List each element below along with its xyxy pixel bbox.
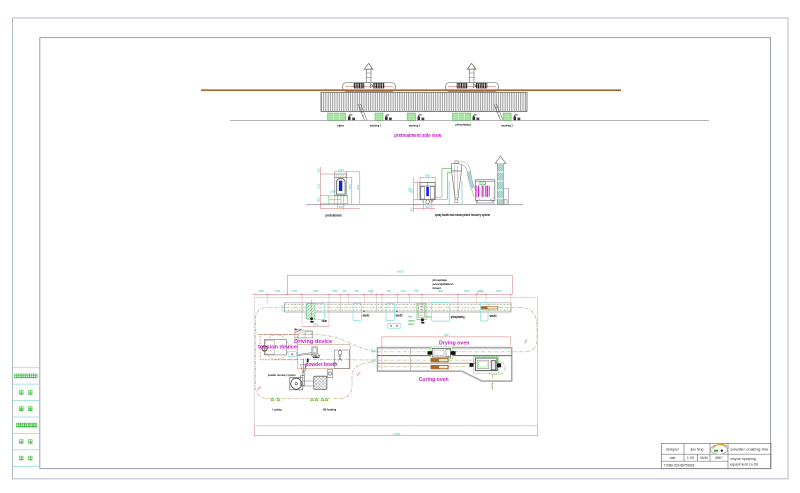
svg-text:600: 600 xyxy=(410,207,414,212)
svg-text:1500: 1500 xyxy=(464,289,470,293)
svg-text:xinyue spraying: xinyue spraying xyxy=(730,457,756,461)
svg-text:Off loading: Off loading xyxy=(323,407,337,411)
svg-text:1500: 1500 xyxy=(330,189,336,193)
svg-text:2200: 2200 xyxy=(496,289,502,293)
svg-text:2000: 2000 xyxy=(490,383,494,389)
svg-text:phosphating: phosphating xyxy=(455,123,470,127)
svg-text:2225: 2225 xyxy=(275,289,281,293)
svg-text:1500: 1500 xyxy=(372,348,375,354)
svg-text:Driving device: Driving device xyxy=(294,339,332,345)
svg-text:1450: 1450 xyxy=(332,289,338,293)
svg-text:skim: skim xyxy=(337,124,344,128)
svg-text:wash2: wash2 xyxy=(395,314,403,318)
svg-text:7300: 7300 xyxy=(443,333,449,337)
svg-text:3000: 3000 xyxy=(313,289,319,293)
svg-text:24250: 24250 xyxy=(396,269,404,273)
svg-text:jiao feng: jiao feng xyxy=(690,447,704,451)
svg-text:1700: 1700 xyxy=(400,289,406,293)
svg-text:hot: hot xyxy=(408,315,412,319)
svg-text:Curing oven: Curing oven xyxy=(419,377,449,383)
svg-text:1:100: 1:100 xyxy=(687,456,694,460)
svg-text:1500: 1500 xyxy=(410,188,414,194)
svg-text:1445: 1445 xyxy=(367,289,373,293)
svg-text:tank: tank xyxy=(408,322,414,326)
svg-text:skim: skim xyxy=(322,319,328,323)
svg-text:885617: 885617 xyxy=(715,456,722,460)
svg-text:pretreatment side view: pretreatment side view xyxy=(394,133,441,139)
svg-text:1700: 1700 xyxy=(292,289,298,293)
svg-text:1711: 1711 xyxy=(478,289,484,293)
svg-text:3000: 3000 xyxy=(313,323,319,327)
svg-text:powder booth: powder booth xyxy=(306,362,338,368)
svg-text:water: water xyxy=(408,318,415,322)
svg-text:1750: 1750 xyxy=(413,289,419,293)
svg-text:2250: 2250 xyxy=(316,183,320,189)
svg-text:27300: 27300 xyxy=(393,432,401,436)
svg-text:phosphating: phosphating xyxy=(451,315,465,319)
svg-text:pretreatment: pretreatment xyxy=(326,213,343,217)
svg-text:3000: 3000 xyxy=(425,174,431,178)
svg-text:washing 3: washing 3 xyxy=(501,124,513,128)
svg-text:1500: 1500 xyxy=(258,289,264,293)
svg-text:400: 400 xyxy=(426,205,431,209)
svg-text:powder recovery system: powder recovery system xyxy=(268,373,296,377)
svg-text:equipment co.ltd: equipment co.ltd xyxy=(730,463,758,467)
svg-text:tension device: tension device xyxy=(258,344,297,350)
svg-text:wash3: wash3 xyxy=(489,314,497,318)
svg-text:4500: 4500 xyxy=(437,289,443,293)
svg-text:washing 1: washing 1 xyxy=(369,124,381,128)
svg-text:1500: 1500 xyxy=(372,358,375,364)
svg-text:1000: 1000 xyxy=(338,168,344,172)
svg-text:T:0086-523-88759666: T:0086-523-88759666 xyxy=(664,463,695,467)
svg-text:Drying oven: Drying oven xyxy=(439,340,470,346)
svg-text:Loading: Loading xyxy=(272,407,281,411)
svg-text:powder coating line: powder coating line xyxy=(731,447,769,451)
svg-text:washing 2: washing 2 xyxy=(408,124,420,128)
svg-text:06/M: 06/M xyxy=(700,456,708,460)
svg-text:1500: 1500 xyxy=(348,184,352,190)
svg-text:designer: designer xyxy=(666,447,680,451)
svg-text:spray booth and monocyclone re: spray booth and monocyclone recovery sys… xyxy=(435,213,490,217)
svg-text:rate: rate xyxy=(670,456,676,460)
svg-text:2250: 2250 xyxy=(356,184,360,190)
svg-text:wash1: wash1 xyxy=(362,314,370,318)
